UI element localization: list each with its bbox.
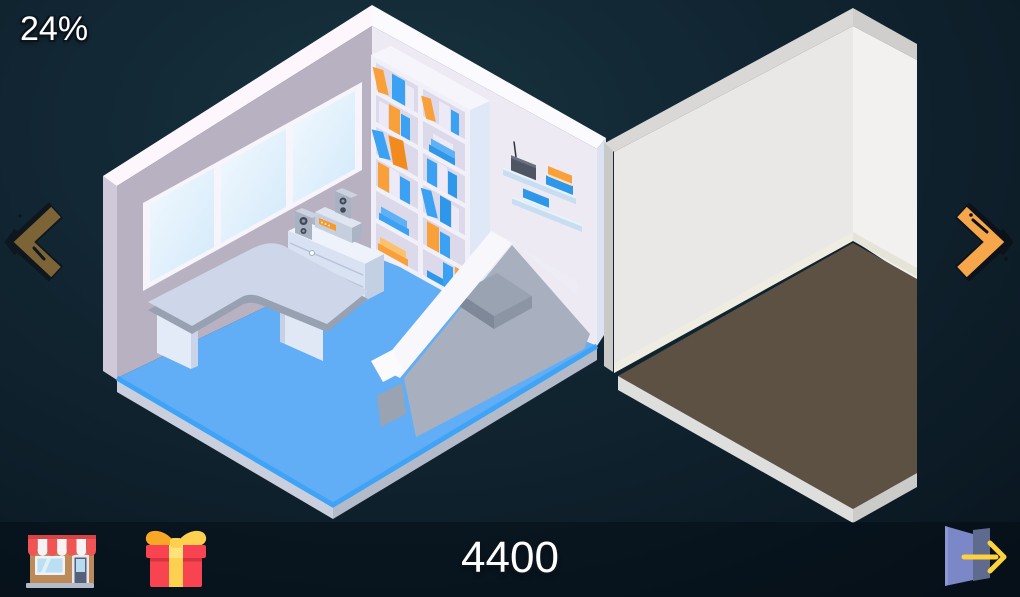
left-wall-outer-edge: [103, 176, 117, 380]
game-stage: 24%: [0, 0, 1020, 597]
storefront-icon: [20, 525, 104, 591]
exit-button[interactable]: [940, 524, 1012, 592]
door-exit-icon: [940, 524, 1012, 592]
gift-button[interactable]: [134, 525, 218, 591]
next-room-button[interactable]: [948, 196, 1018, 284]
progress-label: 24%: [20, 10, 88, 49]
left-wall-outer-edge: [604, 142, 613, 372]
previous-room-button[interactable]: [0, 196, 70, 284]
chevron-right-icon: [948, 196, 1018, 284]
shop-button[interactable]: [20, 525, 104, 591]
isometric-scene: [0, 0, 1020, 597]
gift-icon: [134, 525, 218, 591]
chevron-left-icon: [0, 196, 70, 284]
room-current[interactable]: [103, 5, 606, 519]
bottom-bar: 4400: [0, 522, 1020, 597]
room-next[interactable]: [604, 8, 917, 523]
